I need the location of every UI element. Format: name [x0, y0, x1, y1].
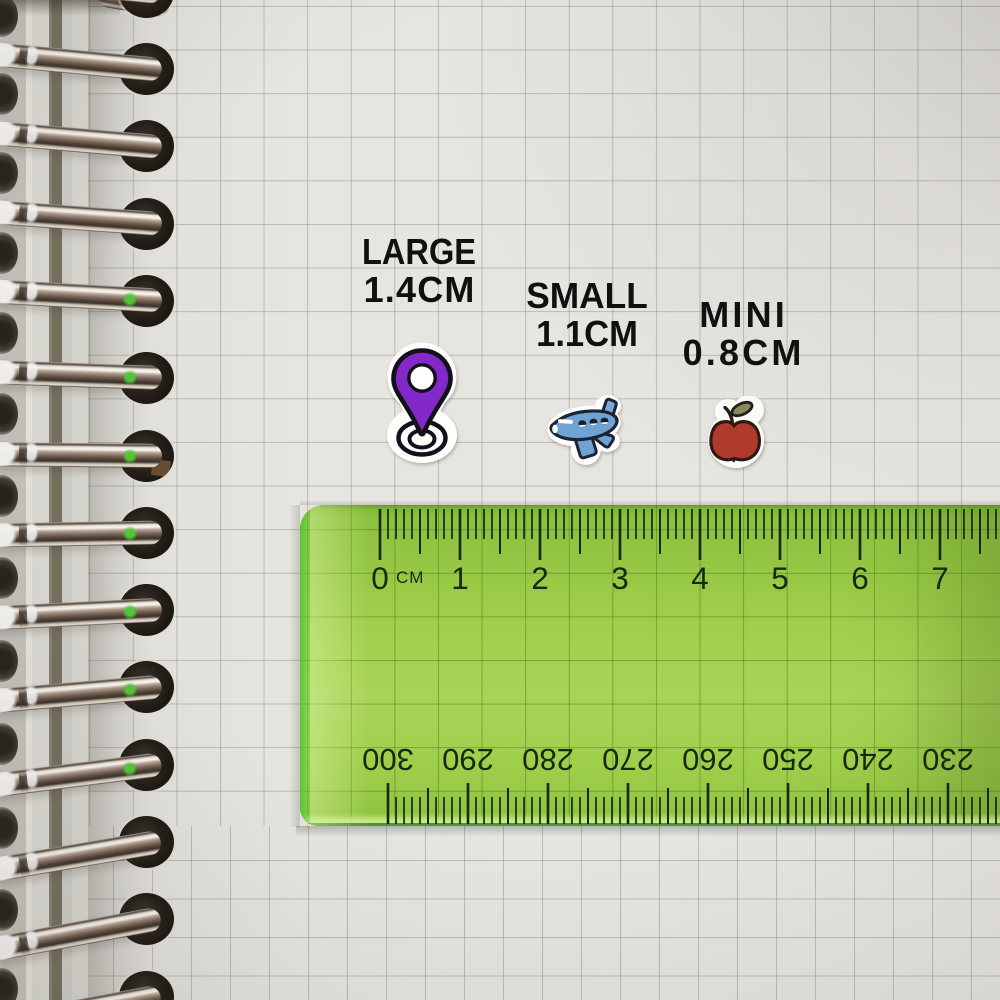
svg-text:0: 0	[371, 560, 389, 596]
svg-text:280: 280	[522, 742, 574, 777]
svg-text:290: 290	[442, 742, 494, 777]
svg-text:230: 230	[922, 742, 974, 777]
svg-text:CM: CM	[396, 568, 424, 587]
svg-text:7: 7	[931, 560, 949, 596]
svg-text:6: 6	[851, 560, 869, 596]
svg-text:260: 260	[682, 742, 734, 777]
svg-text:270: 270	[602, 742, 654, 777]
svg-text:300: 300	[362, 742, 414, 777]
svg-text:250: 250	[762, 742, 814, 777]
svg-text:3: 3	[611, 560, 629, 596]
svg-text:2: 2	[531, 560, 549, 596]
svg-text:1: 1	[451, 560, 469, 596]
svg-text:240: 240	[842, 742, 894, 777]
svg-text:4: 4	[691, 560, 709, 596]
svg-text:5: 5	[771, 560, 789, 596]
